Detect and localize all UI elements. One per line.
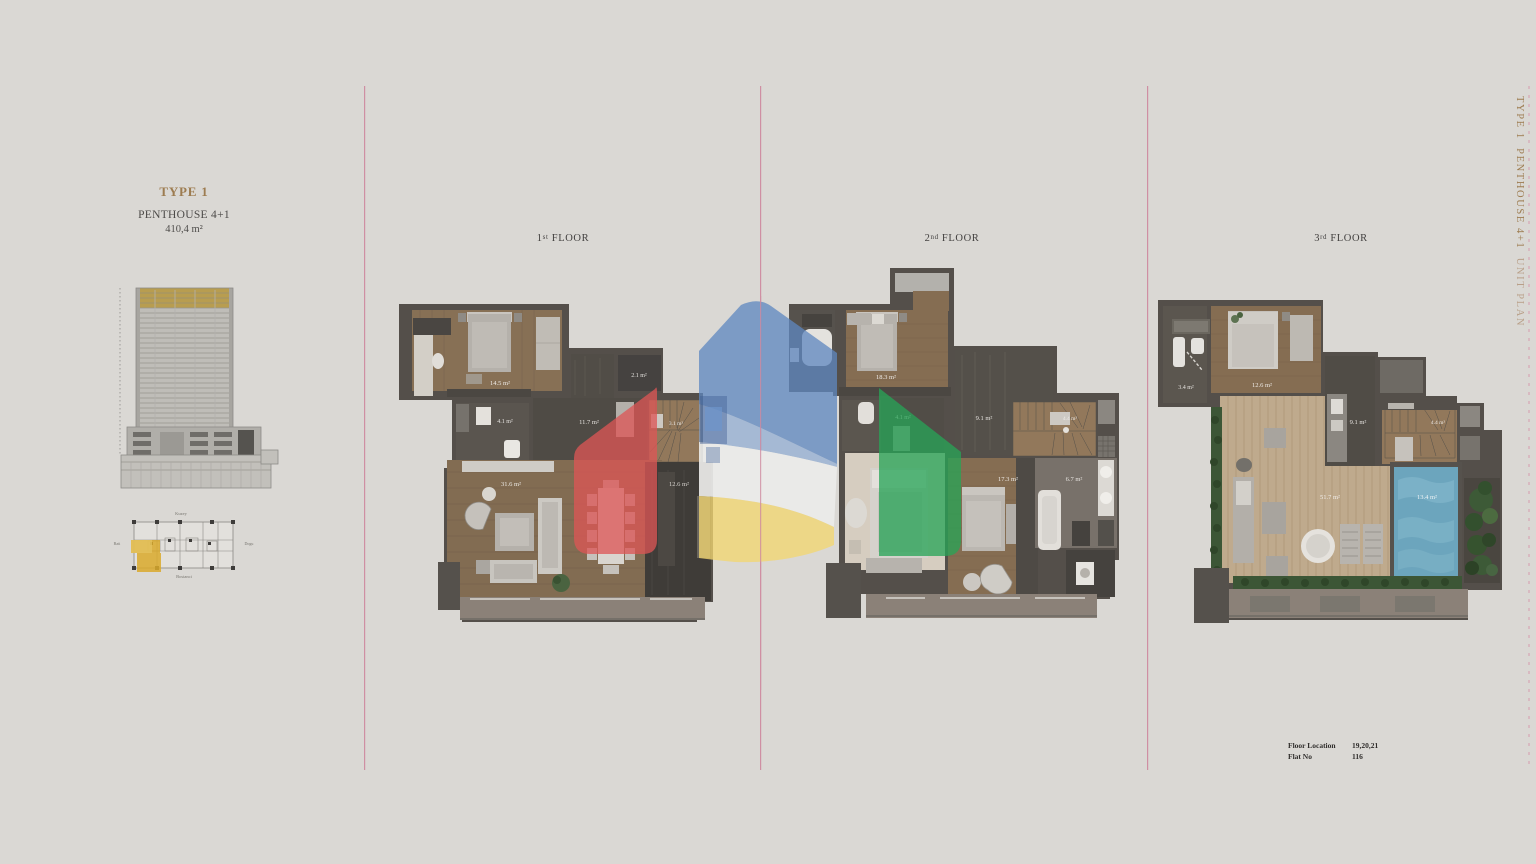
svg-text:TYPE 1: TYPE 1 bbox=[159, 184, 208, 199]
svg-text:9.1 m²: 9.1 m² bbox=[976, 415, 993, 422]
svg-text:12.6 m²: 12.6 m² bbox=[1252, 382, 1272, 389]
svg-text:13.4 m²: 13.4 m² bbox=[1417, 494, 1437, 501]
svg-text:PENTHOUSE 4+1: PENTHOUSE 4+1 bbox=[138, 209, 230, 221]
svg-text:116: 116 bbox=[1352, 752, 1363, 761]
svg-text:Bostanci: Bostanci bbox=[176, 574, 192, 579]
svg-text:Floor Location: Floor Location bbox=[1288, 741, 1336, 750]
svg-text:4.4 m²: 4.4 m² bbox=[1063, 416, 1078, 422]
svg-text:18.3 m²: 18.3 m² bbox=[876, 374, 896, 381]
svg-text:Flat No: Flat No bbox=[1288, 752, 1312, 761]
svg-text:2.1 m²: 2.1 m² bbox=[631, 373, 647, 379]
svg-text:11.7 m²: 11.7 m² bbox=[579, 419, 599, 426]
svg-text:Kuzey: Kuzey bbox=[175, 511, 187, 516]
svg-text:410,4 m²: 410,4 m² bbox=[165, 224, 203, 235]
svg-text:19,20,21: 19,20,21 bbox=[1352, 741, 1379, 750]
svg-text:12.6 m²: 12.6 m² bbox=[669, 481, 689, 488]
svg-text:3.1 m²: 3.1 m² bbox=[669, 421, 684, 427]
svg-text:3.4 m²: 3.4 m² bbox=[1178, 385, 1194, 391]
svg-text:9.1 m²: 9.1 m² bbox=[1350, 419, 1367, 426]
svg-text:TYPE 1 PENTHOUSE 4+1 UNIT PL: TYPE 1 PENTHOUSE 4+1 UNIT PLAN bbox=[1514, 96, 1525, 327]
svg-text:6.7 m²: 6.7 m² bbox=[1066, 476, 1083, 483]
svg-text:Bati: Bati bbox=[114, 541, 122, 546]
svg-text:17.3 m²: 17.3 m² bbox=[998, 476, 1018, 483]
svg-text:4.4 m²: 4.4 m² bbox=[1431, 420, 1446, 426]
svg-text:31.6 m²: 31.6 m² bbox=[501, 481, 521, 488]
svg-text:14.5 m²: 14.5 m² bbox=[490, 380, 510, 387]
svg-text:Dogu: Dogu bbox=[245, 541, 254, 546]
svg-text:51.7 m²: 51.7 m² bbox=[1320, 494, 1340, 501]
svg-text:4.1 m²: 4.1 m² bbox=[497, 419, 513, 425]
